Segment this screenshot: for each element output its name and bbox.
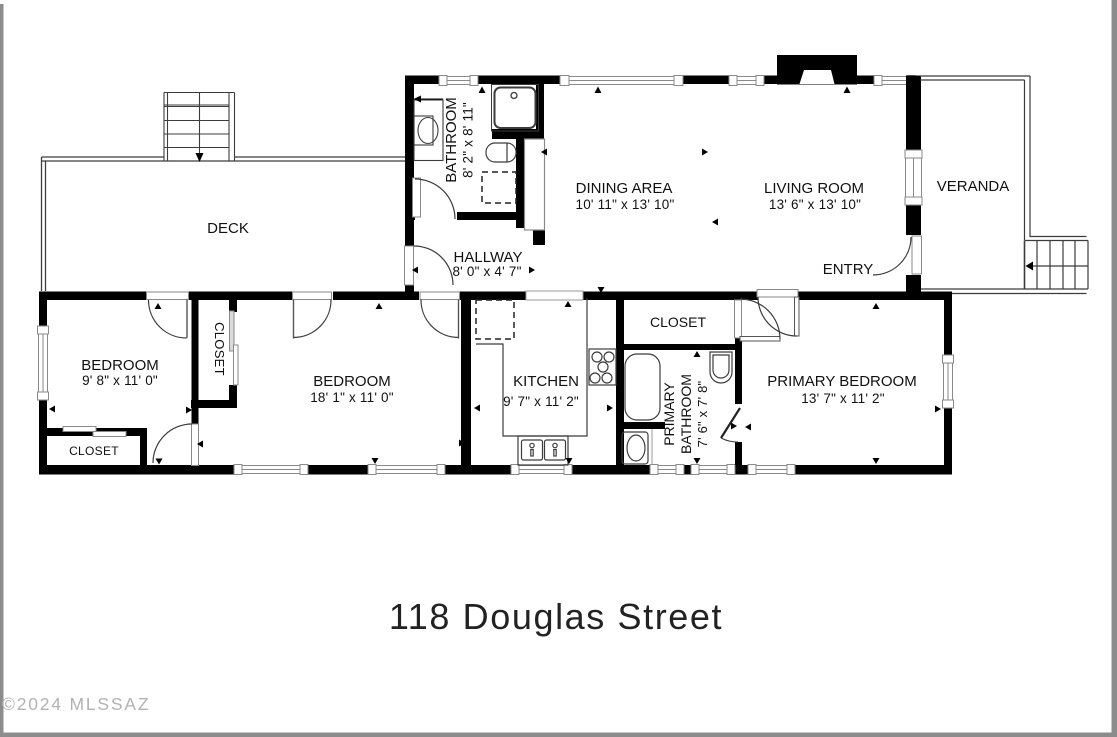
- svg-text:CLOSET: CLOSET: [212, 322, 227, 376]
- svg-text:LIVING ROOM: LIVING ROOM: [764, 180, 864, 197]
- svg-text:ENTRY: ENTRY: [823, 261, 874, 278]
- svg-text:DECK: DECK: [207, 220, 249, 237]
- svg-text:BATHROOM: BATHROOM: [678, 374, 694, 454]
- svg-text:CLOSET: CLOSET: [69, 444, 119, 458]
- svg-text:VERANDA: VERANDA: [937, 178, 1010, 195]
- svg-text:18' 1" x 11' 0": 18' 1" x 11' 0": [310, 390, 394, 405]
- svg-text:7' 6" x 7' 8": 7' 6" x 7' 8": [695, 380, 710, 447]
- svg-text:13' 7" x 11' 2": 13' 7" x 11' 2": [801, 391, 885, 406]
- svg-text:9' 8" x 11' 0": 9' 8" x 11' 0": [82, 373, 158, 388]
- svg-text:PRIMARY: PRIMARY: [661, 382, 677, 446]
- svg-text:DINING AREA: DINING AREA: [576, 180, 673, 197]
- svg-text:10' 11" x 13' 10": 10' 11" x 13' 10": [576, 197, 675, 212]
- svg-text:9' 7" x 11' 2": 9' 7" x 11' 2": [503, 394, 579, 409]
- svg-text:CLOSET: CLOSET: [650, 314, 706, 330]
- svg-text:PRIMARY BEDROOM: PRIMARY BEDROOM: [767, 373, 916, 390]
- svg-text:8' 2" x 8' 11": 8' 2" x 8' 11": [461, 102, 476, 178]
- svg-text:©2024 MLSSAZ: ©2024 MLSSAZ: [2, 694, 150, 714]
- svg-text:KITCHEN: KITCHEN: [513, 373, 579, 390]
- svg-text:BEDROOM: BEDROOM: [81, 357, 159, 374]
- svg-text:BATHROOM: BATHROOM: [443, 97, 460, 183]
- svg-text:8' 0" x 4' 7": 8' 0" x 4' 7": [452, 264, 521, 279]
- svg-text:118 Douglas Street: 118 Douglas Street: [389, 596, 723, 637]
- svg-text:13' 6" x 13' 10": 13' 6" x 13' 10": [769, 197, 861, 212]
- svg-text:BEDROOM: BEDROOM: [313, 373, 391, 390]
